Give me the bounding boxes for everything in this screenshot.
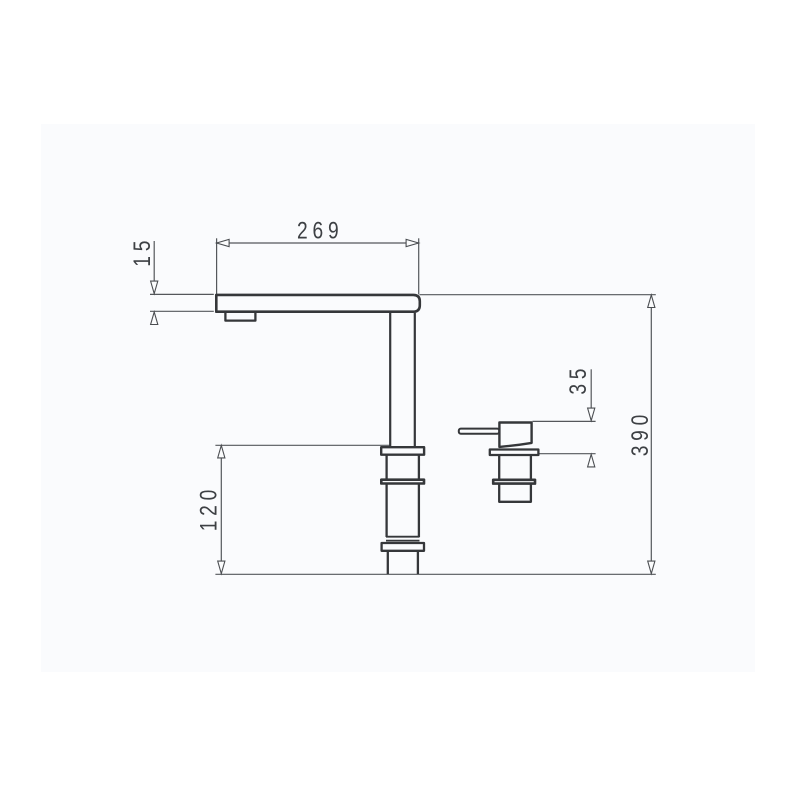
svg-text:120: 120	[194, 485, 222, 531]
svg-text:269: 269	[297, 217, 343, 245]
svg-text:35: 35	[564, 364, 592, 395]
svg-text:15: 15	[128, 236, 156, 267]
svg-text:390: 390	[626, 410, 654, 456]
